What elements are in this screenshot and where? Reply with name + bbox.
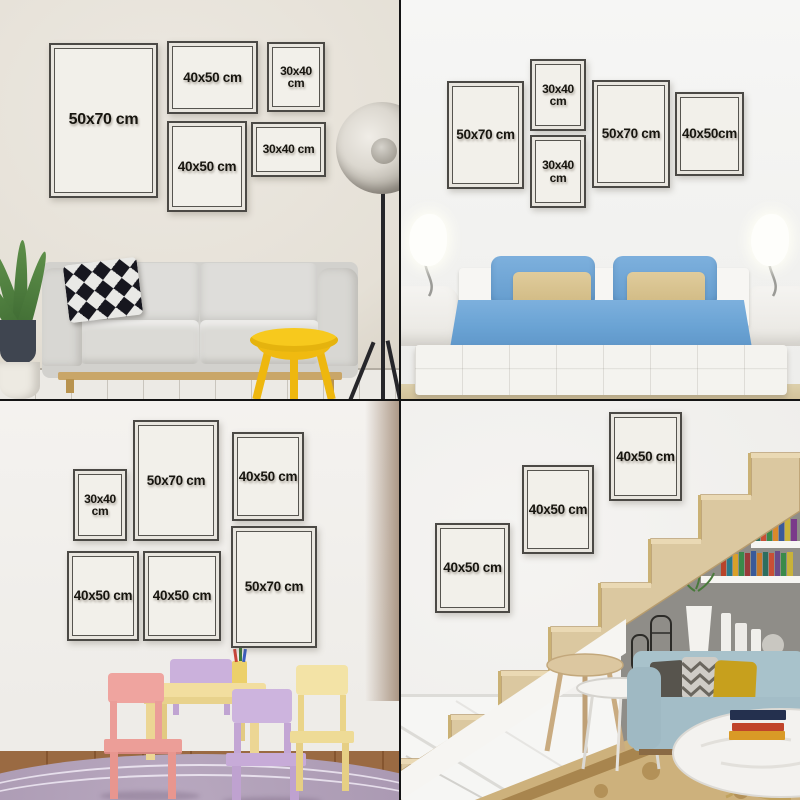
frame-30x40: 30x40 cm [530,59,586,131]
pencil [233,649,238,662]
pencil [242,649,247,662]
frame-size-label: 40x50 cm [616,450,674,464]
frame-size-label: 30x40 cm [274,65,318,89]
frame-size-label: 40x50 cm [153,589,211,603]
frame-size-label: 40x50cm [682,127,737,141]
frame-40x50: 40x50 cm [143,551,221,641]
frame-50x70: 50x70 cm [231,526,317,648]
bed-base [415,345,787,395]
frame-size-label: 30x40 cm [536,83,580,107]
frame-size-label: 40x50 cm [74,589,132,603]
book-shelf [701,576,800,583]
sofa-back-cushion [200,263,317,325]
frame-size-label: 50x70 cm [69,112,139,128]
kids-chair-pink-back [108,673,164,703]
frame-50x70: 50x70 cm [447,81,524,189]
kids-chair-lavender-seat [226,753,306,766]
scene-kids-room: 30x40 cm 50x70 cm 40x50 cm 40x50 cm 40x5… [0,401,399,800]
floor-lamp-hub [371,138,397,164]
chair-post [298,695,304,733]
sofa-seat-cushion [80,320,199,364]
wall-shadow [365,401,399,701]
sofa-wood-base [58,372,342,380]
frame-size-label: 30x40 cm [79,493,121,517]
frame-40x50: 40x50cm [675,92,744,176]
triangle-pattern-pillow [63,257,144,324]
table-lamp-shade [751,214,789,266]
frame-30x40: 30x40 cm [251,122,326,177]
book-stack [729,710,786,740]
chair-leg [232,766,241,800]
scene-staircase: 40x50 cm 40x50 cm 40x50 cm [401,401,800,800]
frame-size-label: 40x50 cm [183,71,241,85]
frame-mockup-collage: 50x70 cm 40x50 cm 30x40 cm 40x50 cm 30x4… [0,0,800,800]
kids-chair-lavender-front-back [232,689,292,723]
table-lamp-shade [409,214,447,266]
stool-leg [290,354,298,399]
white-vase [686,606,712,652]
frame-size-label: 40x50 cm [178,160,236,174]
chair-post [110,701,117,743]
frame-size-label: 40x50 cm [529,503,587,517]
frame-30x40: 30x40 cm [530,135,586,208]
chair-leg [296,743,303,791]
scene-bedroom: 50x70 cm 30x40 cm 30x40 cm 50x70 cm 40x5… [401,0,800,399]
frame-size-label: 30x40 cm [536,159,580,183]
sofa-arm [627,667,661,749]
frame-size-label: 50x70 cm [456,128,514,142]
frame-size-label: 40x50 cm [239,470,297,484]
frame-size-label: 40x50 cm [443,561,501,575]
frame-40x50: 40x50 cm [167,41,258,114]
frame-50x70: 50x70 cm [133,420,219,541]
frame-40x50: 40x50 cm [232,432,304,521]
frame-30x40: 30x40 cm [73,469,127,541]
floor-lamp-pole [381,190,385,399]
frame-50x70: 50x70 cm [49,43,158,198]
chair-leg [342,743,349,791]
frame-40x50: 40x50 cm [67,551,139,641]
sofa-leg [66,379,74,393]
white-planter [0,362,40,399]
frame-40x50: 40x50 cm [167,121,247,212]
chair-post [340,695,346,733]
chair-post [234,723,241,755]
frame-40x50: 40x50 cm [522,465,594,554]
frame-50x70: 50x70 cm [592,80,670,188]
frame-40x50: 40x50 cm [435,523,510,613]
chair-post [155,701,162,743]
frame-size-label: 50x70 cm [245,580,303,594]
kids-chair-yellow-seat [290,731,354,743]
plant-pot [0,320,36,364]
chair-leg [168,752,176,799]
frame-size-label: 30x40 cm [263,143,315,155]
frame-40x50: 40x50 cm [609,412,682,501]
scene-living-room: 50x70 cm 40x50 cm 30x40 cm 40x50 cm 30x4… [0,0,399,399]
yellow-stool-top [250,328,338,352]
frame-30x40: 30x40 cm [267,42,325,112]
chair-leg [110,752,118,799]
frame-size-label: 50x70 cm [147,474,205,488]
candle [721,613,731,657]
kids-chair-yellow-back [296,665,348,695]
frame-size-label: 50x70 cm [602,127,660,141]
book-shelf [751,541,800,548]
